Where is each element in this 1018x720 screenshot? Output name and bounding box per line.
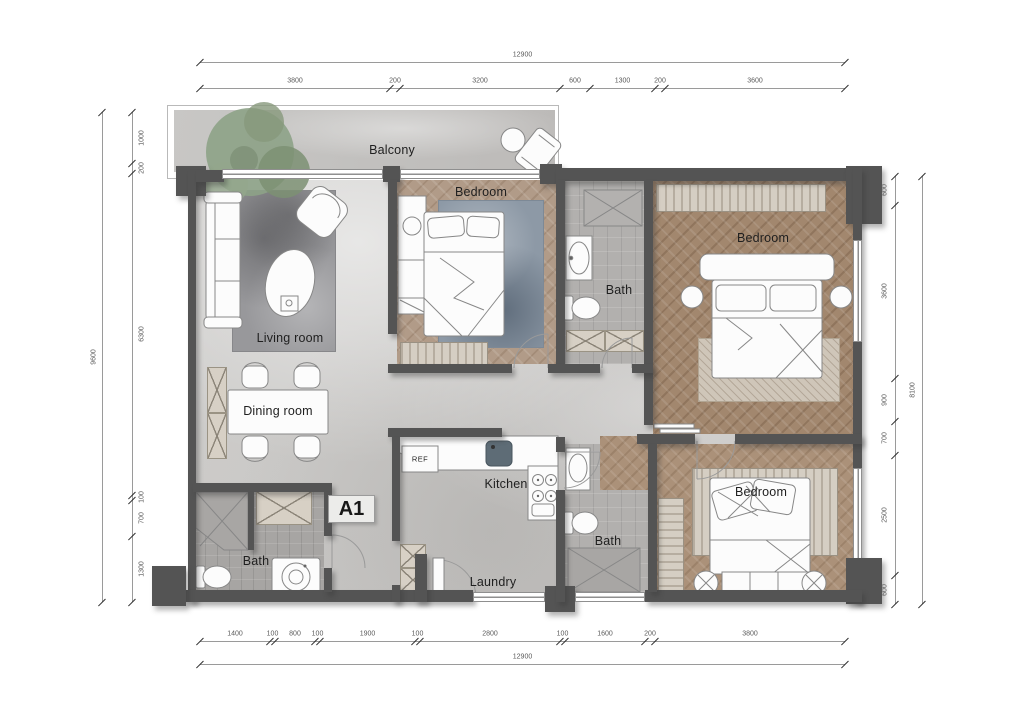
- dim-label: 100: [139, 492, 146, 504]
- dim-label: 1400: [227, 631, 243, 638]
- dim-tick: [841, 638, 849, 646]
- dim-label: 3600: [882, 284, 889, 300]
- dim-chain-line: [895, 176, 896, 604]
- dim-label: 1000: [139, 130, 146, 146]
- dim-label: 200: [644, 631, 656, 638]
- dim-label: 600: [569, 78, 581, 85]
- dim-label: 3600: [747, 78, 763, 85]
- dim-label: 100: [312, 631, 324, 638]
- dim-label: 700: [882, 432, 889, 444]
- dim-label: 1300: [139, 561, 146, 577]
- dim-tick: [891, 601, 899, 609]
- dim-tick: [128, 599, 136, 607]
- dim-label: 100: [557, 631, 569, 638]
- dim-label: 600: [882, 584, 889, 596]
- dim-label: 3800: [287, 78, 303, 85]
- dim-label: 6300: [139, 326, 146, 342]
- dim-chain-line: [200, 88, 845, 89]
- dim-tick: [918, 601, 926, 609]
- dim-label: 2800: [482, 631, 498, 638]
- dim-label: 200: [389, 78, 401, 85]
- dim-label: 100: [267, 631, 279, 638]
- dim-total-line: [200, 62, 845, 63]
- dim-label: 200: [654, 78, 666, 85]
- dim-label: 1900: [360, 631, 376, 638]
- dim-label: 12900: [513, 52, 532, 59]
- dim-label: 9600: [91, 349, 98, 365]
- dim-tick: [841, 59, 849, 67]
- dim-label: 12900: [513, 654, 532, 661]
- dim-label: 700: [139, 512, 146, 524]
- dim-label: 1600: [597, 631, 613, 638]
- dim-label: 3800: [742, 631, 758, 638]
- dim-label: 800: [289, 631, 301, 638]
- dim-total-line: [102, 112, 103, 602]
- dim-label: 3200: [472, 78, 488, 85]
- dim-chain-line: [200, 641, 845, 642]
- dim-label: 8100: [910, 382, 917, 398]
- dim-total-line: [200, 664, 845, 665]
- dim-label: 1300: [615, 78, 631, 85]
- dim-label: 200: [139, 162, 146, 174]
- dim-tick: [841, 85, 849, 93]
- dim-label: 600: [882, 185, 889, 197]
- dim-label: 100: [412, 631, 424, 638]
- dimension-annotations: 3800200320060013002003600129001400100800…: [0, 0, 1018, 720]
- dim-label: 2500: [882, 507, 889, 523]
- dim-total-line: [922, 176, 923, 604]
- dim-label: 900: [882, 394, 889, 406]
- floor-plan-canvas: Balcony Bedroom Bath Bedroom Living room…: [0, 0, 1018, 720]
- dim-tick: [98, 599, 106, 607]
- dim-tick: [841, 661, 849, 669]
- dim-chain-line: [132, 112, 133, 602]
